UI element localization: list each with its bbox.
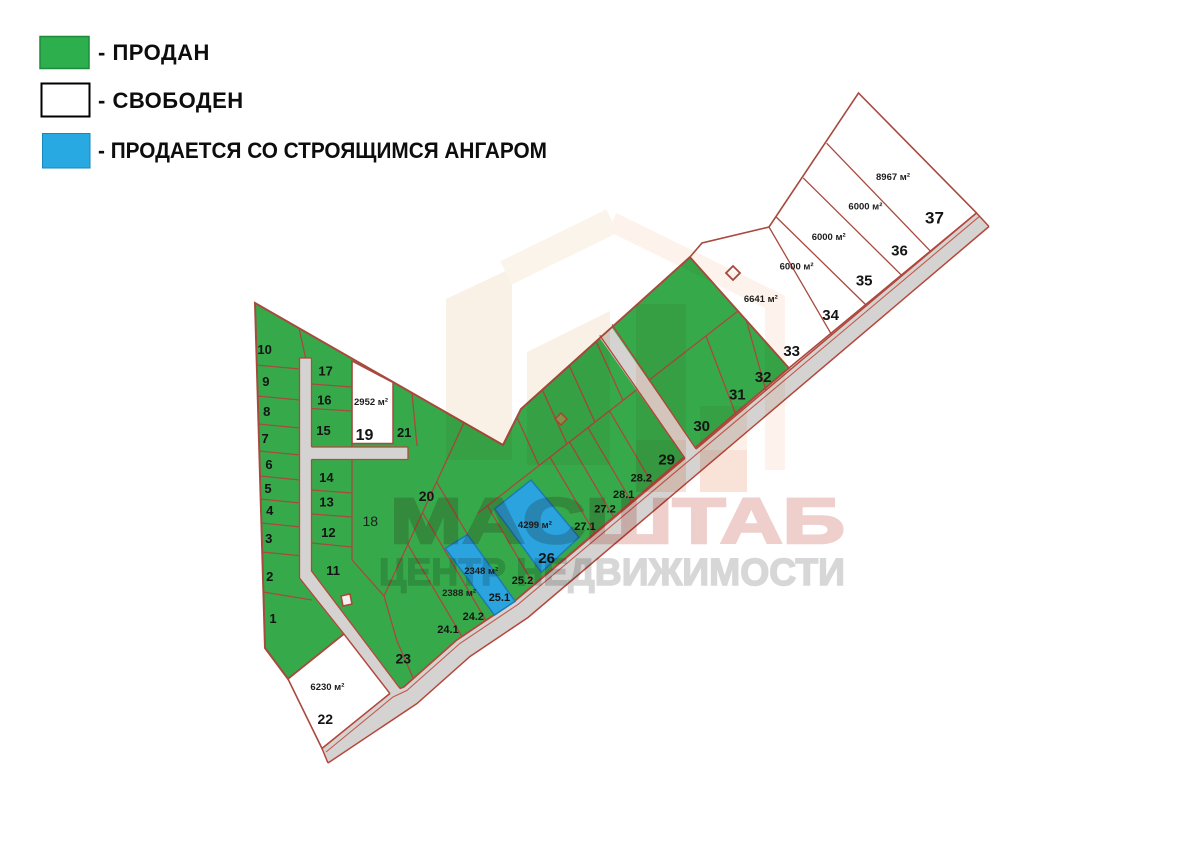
svg-text:2952 м²: 2952 м² [354,397,388,408]
svg-text:6: 6 [265,457,272,472]
svg-text:8967 м²: 8967 м² [876,172,910,183]
svg-text:19: 19 [356,427,374,444]
svg-text:5: 5 [264,481,271,496]
svg-text:34: 34 [822,307,839,324]
svg-text:13: 13 [319,495,333,510]
svg-text:3: 3 [265,531,272,546]
svg-text:21: 21 [397,425,411,440]
svg-text:6000 м²: 6000 м² [780,262,814,273]
svg-text:16: 16 [317,393,331,408]
svg-text:11: 11 [326,563,340,578]
svg-text:2: 2 [266,569,273,584]
svg-text:24.2: 24.2 [463,611,484,623]
svg-text:6000 м²: 6000 м² [848,202,882,213]
svg-text:22: 22 [318,711,334,727]
svg-text:24.1: 24.1 [437,624,458,636]
svg-text:- СВОБОДЕН: - СВОБОДЕН [98,88,244,113]
svg-text:1: 1 [269,611,276,626]
svg-text:14: 14 [319,470,334,485]
svg-text:17: 17 [318,364,332,379]
svg-text:18: 18 [363,513,379,529]
svg-text:33: 33 [783,343,800,360]
svg-text:9: 9 [262,374,269,389]
svg-text:4: 4 [266,503,274,518]
svg-text:МАСШТАБ: МАСШТАБ [390,485,845,557]
svg-text:12: 12 [321,525,335,540]
svg-text:23: 23 [396,651,412,667]
svg-text:7: 7 [261,431,268,446]
svg-text:ЦЕНТР НЕДВИЖИМОСТИ: ЦЕНТР НЕДВИЖИМОСТИ [379,552,845,594]
svg-text:8: 8 [263,404,270,419]
svg-text:- ПРОДАЕТСЯ СО СТРОЯЩИМСЯ АНГА: - ПРОДАЕТСЯ СО СТРОЯЩИМСЯ АНГАРОМ [98,138,547,163]
svg-text:15: 15 [316,423,330,438]
svg-text:35: 35 [856,273,873,290]
svg-text:6000 м²: 6000 м² [812,232,846,243]
svg-text:31: 31 [729,387,746,404]
svg-text:10: 10 [257,342,271,357]
svg-text:6230 м²: 6230 м² [310,682,344,693]
svg-text:37: 37 [925,209,944,228]
svg-text:- ПРОДАН: - ПРОДАН [98,40,210,65]
svg-text:36: 36 [891,243,908,260]
